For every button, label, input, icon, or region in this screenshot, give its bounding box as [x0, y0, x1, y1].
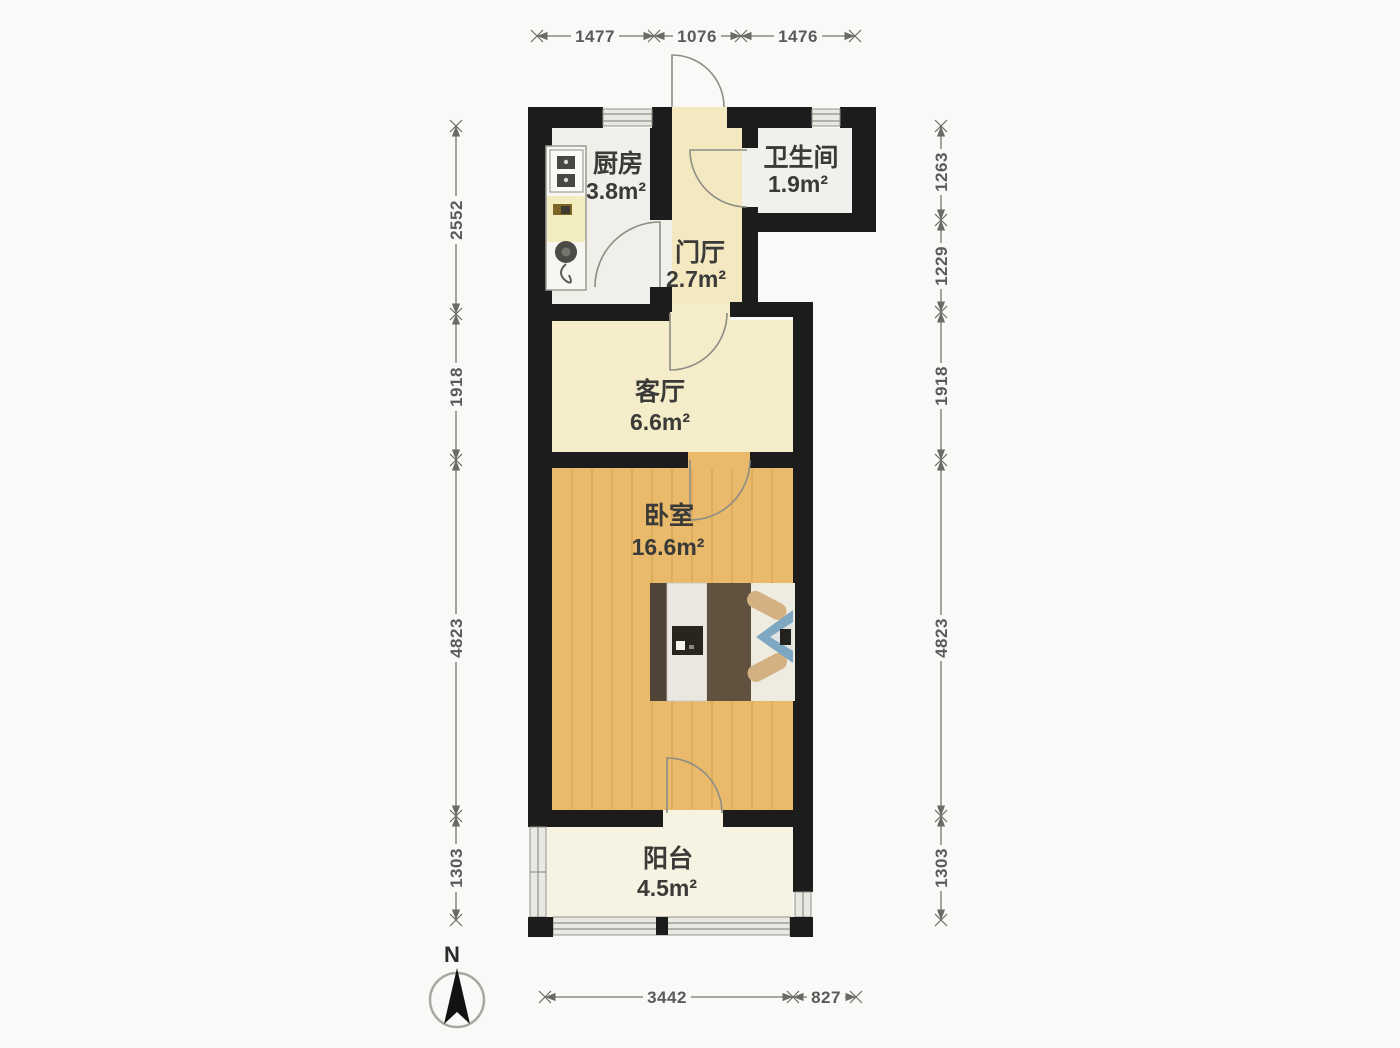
dim-right-5: 1303: [932, 848, 951, 888]
room-label-kitchen: 厨房: [593, 149, 643, 178]
room-area-living: 6.6m²: [630, 409, 690, 435]
dim-left-2: 1918: [447, 367, 466, 407]
dimensions-right: 1263 1229 1918 4823 1303: [931, 120, 951, 926]
entry-threshold: [672, 107, 727, 128]
balcony-corner-post-right: [790, 917, 813, 937]
dim-top-2: 1076: [677, 27, 717, 46]
dim-right-1: 1263: [932, 152, 951, 192]
room-area-bedroom: 16.6m²: [632, 534, 705, 560]
room-area-hall: 2.7m²: [666, 266, 726, 292]
dim-right-3: 1918: [932, 366, 951, 406]
room-label-hall: 门厅: [675, 238, 725, 267]
dimensions-top: 1477 1076 1476: [531, 26, 861, 46]
dimensions-left: 2552 1918 4823 1303: [446, 120, 466, 926]
room-label-bathroom: 卫生间: [763, 144, 838, 172]
dim-bottom-1: 3442: [647, 988, 687, 1007]
room-label-living: 客厅: [635, 377, 685, 406]
dim-bottom-2: 827: [811, 988, 841, 1007]
tv-panel: [672, 626, 703, 655]
north-label: N: [444, 942, 460, 967]
dim-right-2: 1229: [932, 246, 951, 286]
kitchen-counter-mid: [547, 196, 585, 242]
balcony-window-right: [795, 892, 811, 917]
floor-plan-page: 厨房 3.8m² 卫生间 1.9m² 门厅 2.7m² 客厅 6.6m² 卧室 …: [0, 0, 1400, 1048]
room-area-kitchen: 3.8m²: [586, 178, 646, 204]
bathroom-window: [812, 109, 840, 126]
bed: [650, 583, 795, 701]
kitchen-fixtures: [546, 146, 586, 290]
dim-right-4: 4823: [932, 618, 951, 658]
dim-top-3: 1476: [778, 27, 818, 46]
dim-left-1: 2552: [447, 200, 466, 240]
dim-top-1: 1477: [575, 27, 615, 46]
dim-left-4: 1303: [447, 848, 466, 888]
room-area-balcony: 4.5m²: [637, 875, 697, 901]
kitchen-window: [603, 109, 652, 126]
compass: N: [430, 942, 484, 1027]
dimensions-bottom: 3442 827: [539, 987, 862, 1007]
balcony-window-bottom: [553, 917, 790, 935]
dim-left-3: 4823: [447, 618, 466, 658]
balcony-window-left: [530, 827, 546, 917]
room-label-balcony: 阳台: [643, 844, 693, 873]
bed-footboard: [650, 583, 667, 701]
balcony-corner-post-left: [528, 917, 553, 937]
north-arrow-icon: [444, 968, 470, 1024]
floor-plan-canvas: 厨房 3.8m² 卫生间 1.9m² 门厅 2.7m² 客厅 6.6m² 卧室 …: [0, 0, 1400, 1048]
room-label-bedroom: 卧室: [644, 501, 694, 530]
entry-door: [672, 55, 724, 107]
room-area-bathroom: 1.9m²: [768, 171, 828, 197]
bed-cover: [707, 583, 751, 701]
